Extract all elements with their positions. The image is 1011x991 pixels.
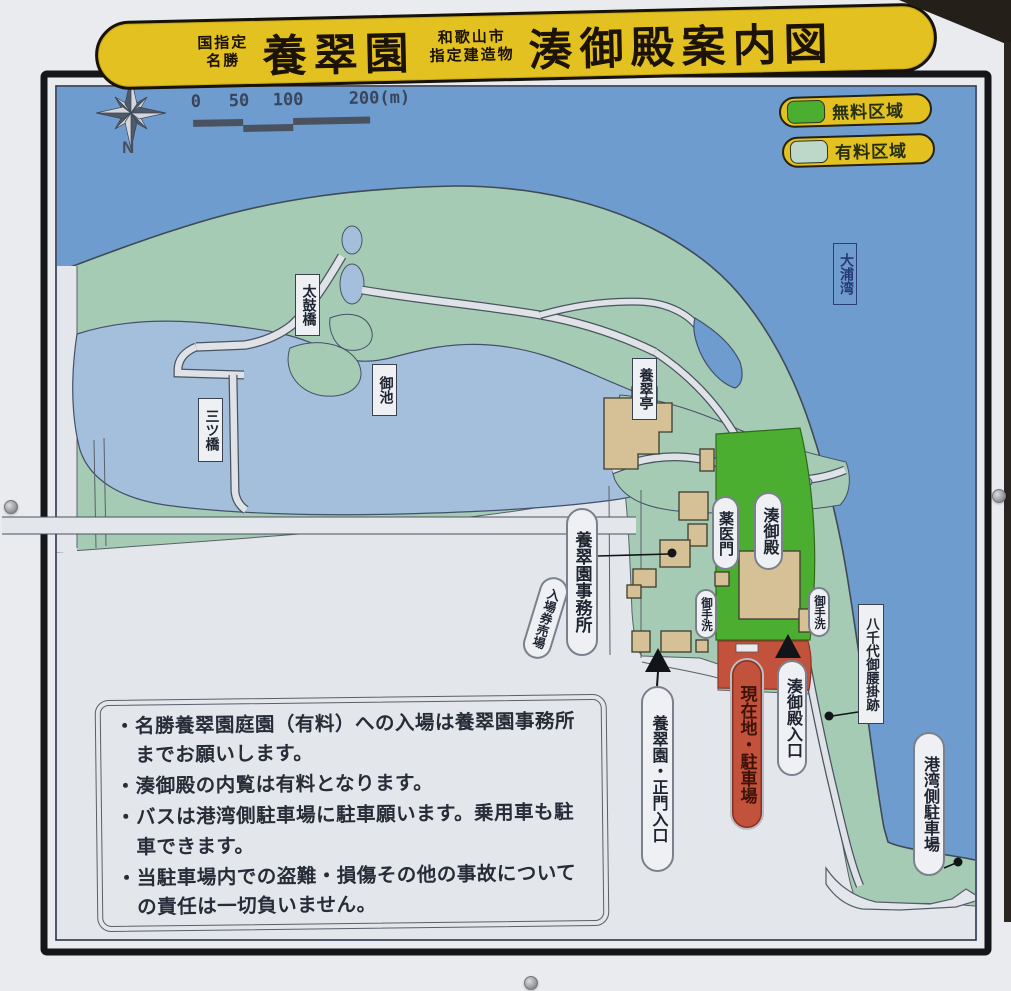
photo-background-edge: [1004, 42, 1011, 922]
label-you-are-here-parking: 現在地・駐車場: [730, 658, 764, 830]
designation-city-line1: 和歌山市: [438, 29, 506, 48]
scale-bar: 0 50 100 200(m): [185, 88, 401, 140]
notice-item: ・ 湊御殿の内覧は有料となります。: [115, 767, 585, 802]
notice-bullet: ・: [115, 712, 136, 771]
map-title: 湊御殿案内図: [528, 7, 835, 78]
notice-bullet: ・: [116, 804, 137, 863]
parking-mark: [736, 644, 758, 652]
designation-national: 国指定 名勝: [197, 35, 249, 71]
label-restroom-west: 御手洗: [695, 589, 717, 639]
notice-bullet: ・: [115, 773, 135, 802]
notice-item: ・ バスは港湾側駐車場に駐車願います。乗用車も駐車できます。: [116, 799, 587, 863]
legend-paid-area: 有料区域: [782, 133, 936, 168]
upper-pond: [340, 264, 364, 304]
notice-text-4: 当駐車場内での盗難・損傷その他の事故についての責任は一切負いません。: [137, 859, 588, 923]
scale-tick-200: 200(m): [349, 88, 411, 109]
label-restroom-east: 御手洗: [808, 587, 830, 637]
port-parking-dot: [954, 858, 963, 867]
scale-seg-3: [293, 117, 370, 125]
legend-paid-label: 有料区域: [835, 137, 908, 164]
scale-tick-100: 100: [273, 90, 304, 111]
label-yakuimon-gate: 薬医門: [712, 496, 739, 570]
office-dot: [668, 549, 677, 558]
label-taiko-bridge: 太鼓橋: [295, 274, 320, 336]
legend-free-area: 無料区域: [779, 93, 933, 128]
notice-box: ・ 名勝養翠園庭園（有料）への入場は養翠園事務所までお願いします。 ・ 湊御殿の…: [95, 694, 610, 932]
scale-tick-0: 0: [191, 92, 202, 112]
notice-text-2: 湊御殿の内覧は有料となります。: [136, 769, 434, 802]
label-oike-pond: 御池: [372, 364, 397, 416]
notice-item: ・ 当駐車場内での盗難・損傷その他の事故についての責任は一切負いません。: [117, 859, 588, 923]
north-label: N: [122, 138, 134, 158]
notice-box-inner: ・ 名勝養翠園庭園（有料）への入場は養翠園事務所までお願いします。 ・ 湊御殿の…: [100, 699, 605, 927]
screw-icon: [992, 489, 1006, 503]
label-harbor-parking: 港湾側駐車場: [913, 732, 945, 876]
label-garden-office: 養翠園事務所: [566, 508, 598, 656]
label-mitsu-bridge: 三ツ橋: [198, 398, 223, 462]
label-yachiyo-site: 八千代御腰掛跡: [858, 604, 884, 724]
label-minato-goten: 湊御殿: [754, 492, 783, 570]
notice-text-3: バスは港湾側駐車場に駐車願います。乗用車も駐車できます。: [136, 799, 587, 863]
designation-national-line1: 国指定: [197, 35, 248, 53]
designation-city-line2: 指定建造物: [430, 47, 515, 66]
label-oura-bay: 大浦湾: [833, 243, 857, 305]
designation-city: 和歌山市 指定建造物: [429, 29, 515, 65]
scale-seg-2: [243, 124, 293, 132]
west-access-road: [2, 517, 636, 534]
designation-national-line2: 名勝: [206, 53, 240, 71]
notice-item: ・ 名勝養翠園庭園（有料）への入場は養翠園事務所までお願いします。: [115, 707, 586, 771]
yachiyo-dot: [825, 712, 834, 721]
signboard-photo: { "sign": { "banner": { "designation_lef…: [0, 0, 1011, 991]
scale-seg-1: [193, 119, 243, 127]
upper-pond-small: [342, 226, 362, 254]
scale-tick-50: 50: [229, 91, 250, 111]
notice-bullet: ・: [117, 865, 138, 924]
label-yosuitei: 養翠亭: [632, 358, 657, 420]
legend-paid-swatch: [790, 140, 829, 164]
notice-text-1: 名勝養翠園庭園（有料）への入場は養翠園事務所までお願いします。: [135, 707, 586, 771]
screw-icon: [4, 500, 18, 514]
site-name: 養翠園: [262, 17, 416, 84]
legend-free-label: 無料区域: [832, 97, 905, 124]
label-goten-entrance: 湊御殿入口: [777, 660, 807, 776]
screw-icon: [524, 976, 538, 990]
label-main-gate-entrance: 養翠園・正門入口: [641, 686, 674, 872]
legend-free-swatch: [787, 100, 826, 124]
main-gate-arrow-stem: [657, 672, 658, 686]
